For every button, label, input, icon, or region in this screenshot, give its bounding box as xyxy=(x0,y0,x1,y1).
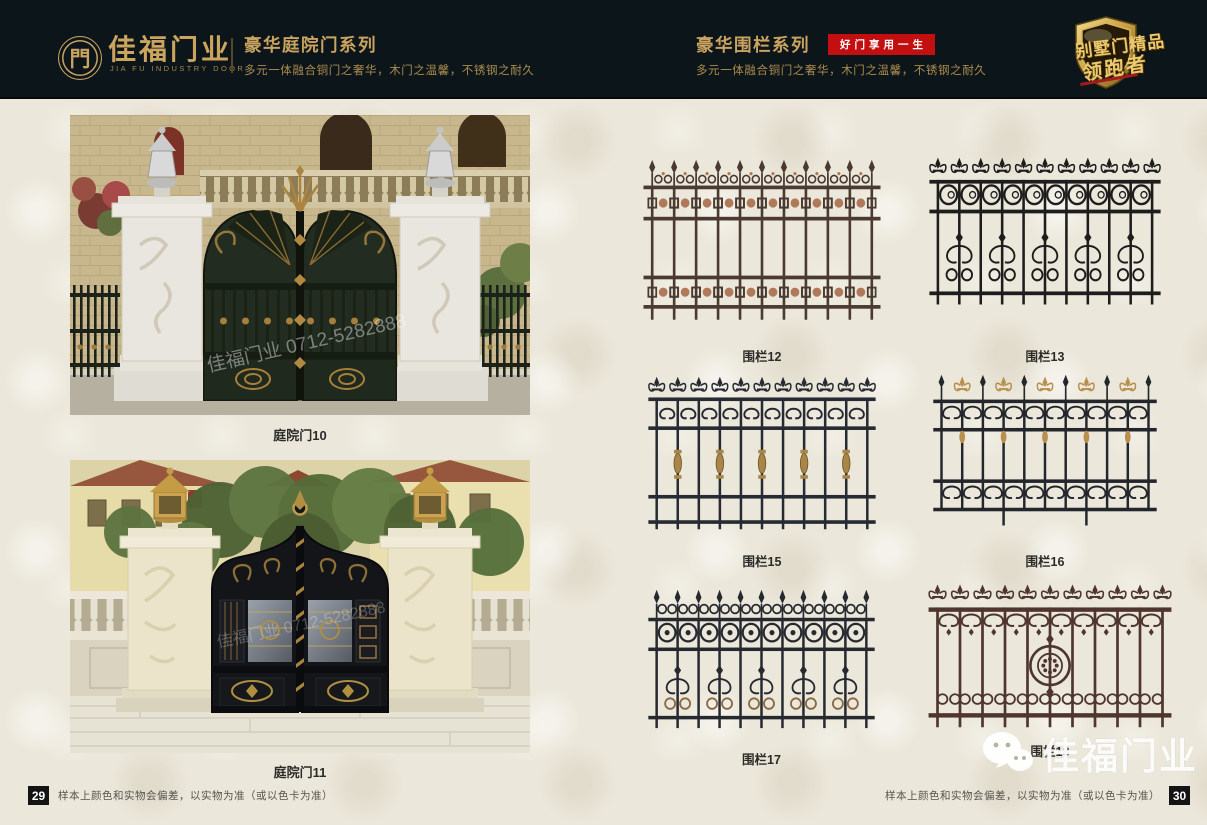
series-title: 豪华围栏系列 xyxy=(696,32,810,57)
product-photo-courtyard-gate-10: 佳福门业 0712-5282888 xyxy=(70,115,530,415)
product-label: 围栏13 xyxy=(926,346,1164,365)
page-number: 30 xyxy=(1169,786,1190,805)
company-name-en: JIA FU INDUSTRY DOOR xyxy=(110,64,245,73)
right-page-footer: 样本上颜色和实物会偏差，以实物为准（或以色卡为准） 30 xyxy=(885,786,1190,805)
fence-image-18 xyxy=(925,581,1175,744)
series-subtitle: 多元一体融合铜门之奢华，木门之温馨，不锈钢之耐久 xyxy=(696,62,986,78)
company-logo-icon: 門 xyxy=(58,36,102,80)
catalog-spread: 門 佳福门业 JIA FU INDUSTRY DOOR 豪华庭院门系列 多元一体… xyxy=(0,0,1207,825)
fence-image-17 xyxy=(645,581,878,743)
series-title: 豪华庭院门系列 xyxy=(244,32,377,57)
product-label: 庭院门11 xyxy=(70,762,530,781)
product-label: 围栏12 xyxy=(640,346,884,365)
logo-door-glyph: 門 xyxy=(70,43,91,73)
header-bar: 門 佳福门业 JIA FU INDUSTRY DOOR 豪华庭院门系列 多元一体… xyxy=(0,0,1207,99)
award-shield-badge: 别墅门精品 领跑者 xyxy=(1046,10,1186,94)
disclaimer-text: 样本上颜色和实物会偏差，以实物为准（或以色卡为准） xyxy=(885,788,1160,803)
company-name: 佳福门业 xyxy=(108,28,232,68)
fence-image-16 xyxy=(930,373,1160,537)
product-label: 围栏16 xyxy=(930,551,1160,570)
product-label: 围栏15 xyxy=(645,551,879,570)
fence-image-15 xyxy=(645,374,879,541)
header-divider xyxy=(231,38,233,73)
series-fences: 豪华围栏系列 好门享用一生 多元一体融合铜门之奢华，木门之温馨，不锈钢之耐久 xyxy=(696,32,986,78)
series-courtyard-doors: 豪华庭院门系列 多元一体融合铜门之奢华，木门之温馨，不锈钢之耐久 xyxy=(244,32,534,78)
slogan-badge: 好门享用一生 xyxy=(828,34,935,55)
fence-image-12 xyxy=(640,158,884,328)
product-label: 庭院门10 xyxy=(70,425,530,444)
product-label: 围栏17 xyxy=(645,749,878,768)
series-subtitle: 多元一体融合铜门之奢华，木门之温馨，不锈钢之耐久 xyxy=(244,62,534,78)
page-number: 29 xyxy=(28,786,49,805)
left-page-footer: 29 样本上颜色和实物会偏差，以实物为准（或以色卡为准） xyxy=(28,786,333,805)
fence-image-13 xyxy=(926,152,1164,324)
disclaimer-text: 样本上颜色和实物会偏差，以实物为准（或以色卡为准） xyxy=(58,788,333,803)
product-label: 围栏18 xyxy=(925,741,1175,760)
product-photo-courtyard-gate-11: 佳福门业 0712-5282888 xyxy=(70,460,530,753)
